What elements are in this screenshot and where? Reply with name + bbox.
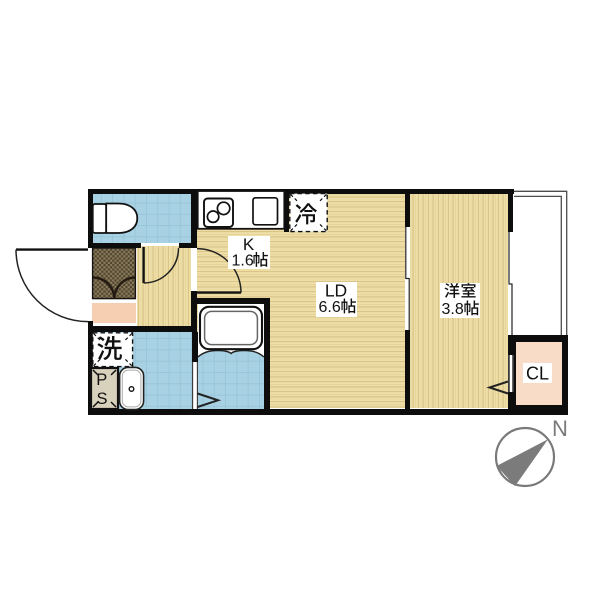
- svg-text:3.8: 3.8: [442, 301, 464, 318]
- svg-text:1.6: 1.6: [232, 253, 254, 270]
- svg-text:CL: CL: [526, 364, 549, 384]
- svg-text:6.6: 6.6: [319, 299, 341, 316]
- svg-text:S: S: [96, 390, 107, 408]
- svg-text:N: N: [552, 416, 568, 441]
- svg-text:K: K: [243, 235, 255, 254]
- svg-text:LD: LD: [325, 281, 347, 301]
- svg-text:P: P: [96, 371, 107, 389]
